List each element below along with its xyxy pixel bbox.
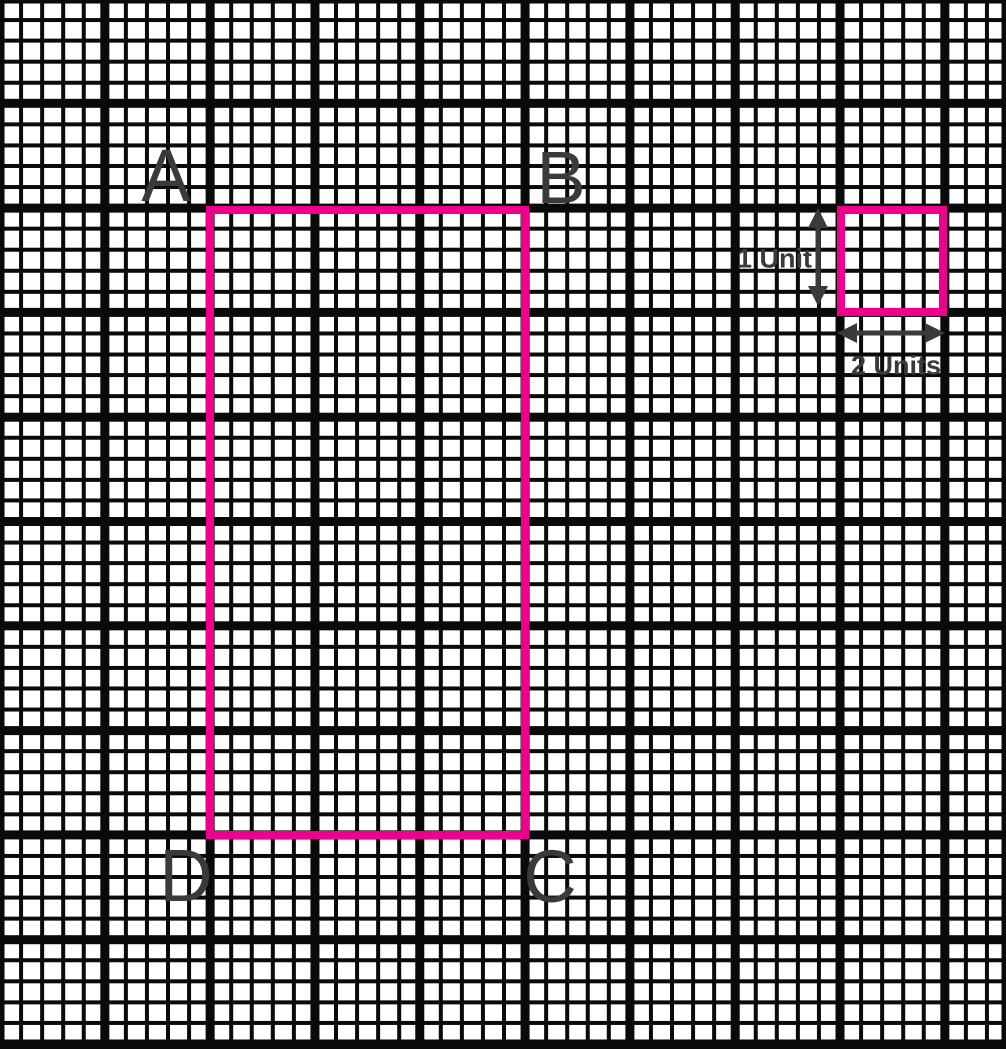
unit-key-square-outline (837, 206, 947, 316)
corner-label-b: B (536, 141, 585, 215)
corner-label-a: A (141, 139, 190, 213)
corner-label-c: C (523, 840, 576, 914)
rectangle-abcd-outline (206, 206, 529, 839)
horizontal-unit-label: 2 Units (851, 353, 941, 380)
horizontal-double-arrow-icon (832, 320, 950, 346)
vertical-unit-label: 1 Unit (737, 246, 812, 273)
corner-label-d: D (159, 839, 212, 913)
graph-paper: A B C D 1 Unit 2 Units (0, 0, 1006, 1049)
